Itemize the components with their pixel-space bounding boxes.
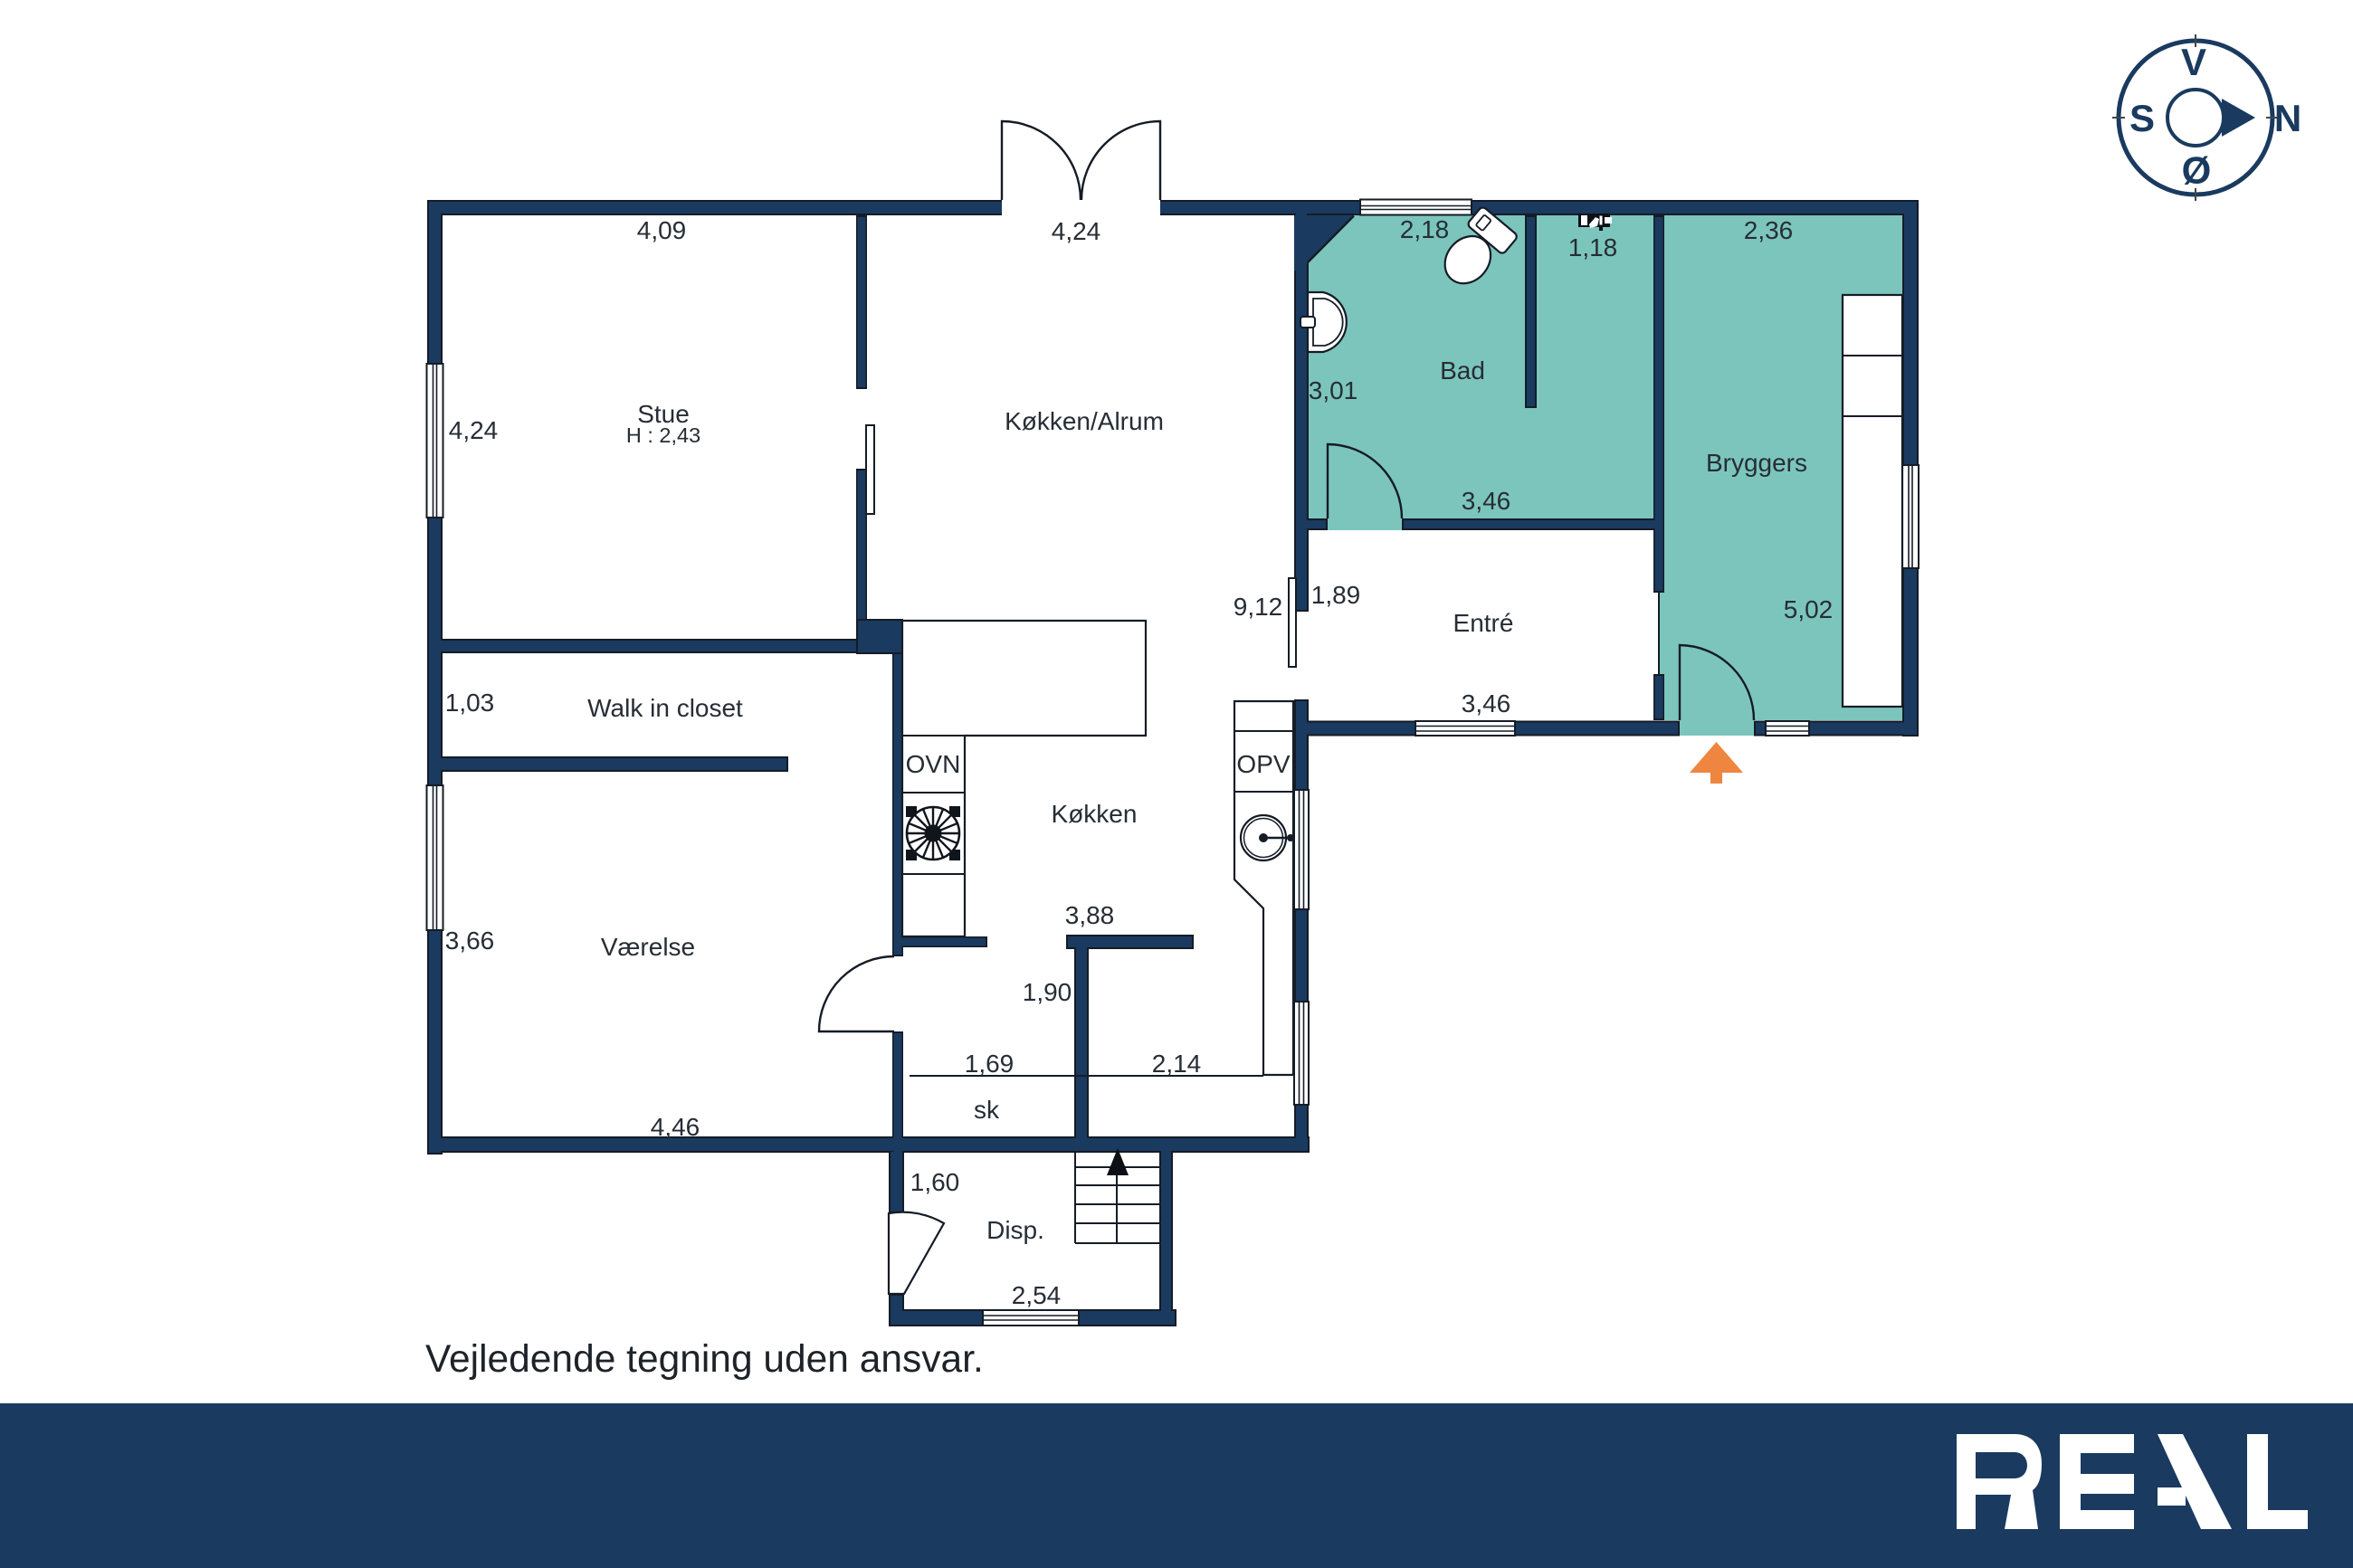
svg-text:2,14: 2,14 [1152,1050,1202,1078]
svg-text:4,24: 4,24 [449,416,499,444]
svg-text:Ø: Ø [2182,149,2212,192]
svg-text:sk: sk [974,1096,1000,1124]
svg-text:3,66: 3,66 [445,927,495,955]
svg-text:5,02: 5,02 [1784,595,1834,623]
svg-text:S: S [2129,97,2155,139]
svg-text:N: N [2274,97,2301,139]
svg-text:V: V [2181,41,2206,83]
svg-text:3,46: 3,46 [1462,487,1511,515]
svg-text:1,03: 1,03 [445,689,495,717]
svg-text:2,18: 2,18 [1400,215,1450,243]
svg-text:2,54: 2,54 [1012,1281,1062,1309]
svg-text:Entré: Entré [1453,609,1514,637]
svg-text:Køkken: Køkken [1052,800,1138,828]
svg-text:4,09: 4,09 [637,216,687,244]
svg-text:3,01: 3,01 [1309,376,1358,404]
svg-text:1,18: 1,18 [1568,233,1618,261]
svg-text:1,90: 1,90 [1023,978,1072,1006]
svg-text:Køkken/Alrum: Køkken/Alrum [1005,407,1164,435]
svg-text:Bad: Bad [1440,356,1485,385]
svg-text:OPV: OPV [1236,750,1290,778]
svg-text:1,60: 1,60 [910,1168,960,1196]
svg-text:3,46: 3,46 [1462,689,1511,717]
svg-text:OVN: OVN [906,750,961,778]
svg-text:H : 2,43: H : 2,43 [626,423,700,447]
svg-text:Værelse: Værelse [601,933,695,961]
svg-text:Walk in closet: Walk in closet [587,694,743,722]
svg-text:Disp.: Disp. [986,1216,1044,1244]
svg-text:1,69: 1,69 [965,1050,1015,1078]
svg-text:4,24: 4,24 [1052,217,1101,245]
svg-text:Bryggers: Bryggers [1706,449,1807,477]
svg-text:1,89: 1,89 [1311,581,1361,609]
svg-text:9,12: 9,12 [1234,593,1283,621]
svg-text:4,46: 4,46 [651,1113,700,1141]
svg-text:Vejledende tegning uden ansvar: Vejledende tegning uden ansvar. [425,1338,984,1381]
svg-text:3,88: 3,88 [1065,901,1115,929]
svg-text:2,36: 2,36 [1744,216,1794,244]
